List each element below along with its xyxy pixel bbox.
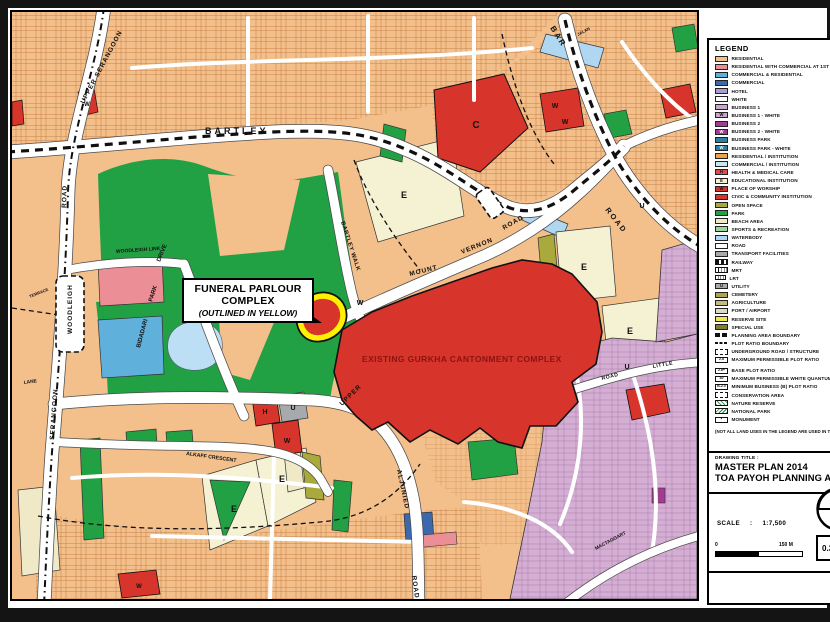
legend-item: MRT bbox=[715, 267, 830, 275]
legend-item: WBUSINESS 2 - WHITE bbox=[715, 128, 830, 136]
map-label: ROAD bbox=[61, 185, 69, 208]
legend-item: RESIDENTIAL / INSTITUTION bbox=[715, 153, 830, 161]
legend-item-label: HOTEL bbox=[732, 88, 748, 94]
scale-value: 1:7,500 bbox=[762, 520, 786, 527]
legend-swatch-c bbox=[715, 56, 728, 62]
legend-item: WBUSINESS PARK - WHITE bbox=[715, 145, 830, 153]
legend-swatch-c bbox=[715, 153, 728, 159]
legend-item-label: MAXIMUM PERMISSIBLE PLOT RATIO bbox=[732, 356, 830, 362]
worship-parcel bbox=[660, 84, 696, 118]
legend-swatch-c bbox=[715, 88, 728, 94]
legend-item-label: BUSINESS 2 - WHITE bbox=[732, 128, 781, 134]
legend-swatch-cons bbox=[715, 392, 728, 398]
legend-item: RESIDENTIAL WITH COMMERCIAL AT 1ST STORE… bbox=[715, 63, 830, 71]
legend-item-label: CEMETERY bbox=[732, 291, 759, 297]
legend-item: BUSINESS 2 bbox=[715, 120, 830, 128]
legend-item-label: BUSINESS PARK bbox=[732, 136, 771, 142]
legend-item: SPECIAL USE bbox=[715, 324, 830, 332]
park-parcel bbox=[672, 24, 697, 52]
legend-swatch-c bbox=[715, 251, 728, 257]
legend-swatch-cl: U bbox=[715, 283, 728, 289]
legend-item: WHITE bbox=[715, 96, 830, 104]
legend-item: BUSINESS PARK bbox=[715, 136, 830, 144]
legend-item: PLOT RATIO BOUNDARY bbox=[715, 340, 830, 348]
legend-swatch-cl: H bbox=[715, 169, 728, 175]
legend-item: RESERVE SITE bbox=[715, 316, 830, 324]
legend-item-label: MONUMENT bbox=[732, 416, 760, 422]
scalebar-end: 150 M bbox=[779, 542, 793, 548]
legend-item: LRT bbox=[715, 275, 830, 283]
legend-item-label: RESIDENTIAL bbox=[732, 55, 764, 61]
legend-note: (NOT ALL LAND USES IN THE LEGEND ARE USE… bbox=[715, 429, 830, 434]
legend-item-label: RESERVE SITE bbox=[732, 316, 767, 322]
legend-swatch-c bbox=[715, 80, 728, 86]
legend-item-label: COMMERCIAL / INSTITUTION bbox=[732, 161, 799, 167]
legend-item-label: WHITE bbox=[732, 96, 748, 102]
legend-item-label: CONSERVATION AREA bbox=[732, 392, 785, 398]
area-value: 0.3 Ha bbox=[822, 544, 830, 553]
map-canvas: WWWCWHUWUUEEEEEW BARTLEYUPPER SERANGOONR… bbox=[10, 10, 699, 601]
legend-item-label: TRANSPORT FACILITIES bbox=[732, 250, 789, 256]
legend-swatch-cl: E bbox=[715, 178, 728, 184]
legend-item-label: NATIONAL PARK bbox=[732, 408, 771, 414]
legend-item-label: RESIDENTIAL WITH COMMERCIAL AT 1ST STORE… bbox=[732, 63, 830, 69]
legend-item: OPEN SPACE bbox=[715, 202, 830, 210]
legend-item-label: BUSINESS 1 bbox=[732, 104, 761, 110]
legend-item: ▪MONUMENT bbox=[715, 416, 830, 424]
scale-row: SCALE:1:7,500 bbox=[717, 520, 786, 527]
legend-item: CONSERVATION AREA bbox=[715, 392, 830, 400]
legend-item-label: COMMERCIAL bbox=[732, 79, 765, 85]
legend-item-label: CIVIC & COMMUNITY INSTITUTION bbox=[732, 193, 812, 199]
legend-swatch-hg2 bbox=[715, 408, 728, 414]
legend-item: PARK bbox=[715, 210, 830, 218]
parcel-letter: W bbox=[562, 119, 569, 126]
legend-item-label: PORT / AIRPORT bbox=[732, 307, 771, 313]
scale-block: SCALE:1:7,500 0 150 M 0.3 Ha bbox=[709, 492, 830, 573]
legend-item: PLANNING AREA BOUNDARY bbox=[715, 332, 830, 340]
legend-swatch-rbox: B-2.0 bbox=[715, 384, 728, 390]
legend-item: UNDERGROUND ROAD / STRUCTURE bbox=[715, 348, 830, 356]
legend-item: ROAD bbox=[715, 242, 830, 250]
legend-swatch-c bbox=[715, 218, 728, 224]
legend-item: EEDUCATIONAL INSTITUTION bbox=[715, 177, 830, 185]
legend-item-label: WATERBODY bbox=[732, 234, 763, 240]
legend-item: COMMERCIAL & RESIDENTIAL bbox=[715, 71, 830, 79]
legend-item-label: MAXIMUM PERMISSIBLE WHITE QUANTUM bbox=[732, 375, 830, 381]
legend-swatch-cl: W bbox=[715, 129, 728, 135]
parcel-letter: W bbox=[284, 438, 291, 445]
parcel-letter: U bbox=[639, 203, 644, 210]
legend-item-label: PLACE OF WORSHIP bbox=[732, 185, 781, 191]
legend-swatch-c bbox=[715, 72, 728, 78]
legend-list: RESIDENTIALRESIDENTIAL WITH COMMERCIAL A… bbox=[715, 55, 830, 424]
parcel-letter: E bbox=[279, 474, 285, 484]
legend-item: TRANSPORT FACILITIES bbox=[715, 250, 830, 258]
callout-line1: FUNERAL PARLOUR bbox=[186, 283, 310, 295]
legend-swatch-c bbox=[715, 194, 728, 200]
legend-item: UUTILITY bbox=[715, 283, 830, 291]
legend-swatch-c bbox=[715, 210, 728, 216]
legend-item-label: UTILITY bbox=[732, 283, 750, 289]
conservation-housing-strip bbox=[656, 240, 697, 342]
legend-item: SPORTS & RECREATION bbox=[715, 226, 830, 234]
parcel-letter: U bbox=[290, 405, 295, 412]
legend-swatch-hg bbox=[715, 400, 728, 406]
legend-item: NATIONAL PARK bbox=[715, 408, 830, 416]
scale-label: SCALE bbox=[717, 520, 740, 527]
legend-item-label: PLOT RATIO BOUNDARY bbox=[732, 340, 790, 346]
callout-line3: (OUTLINED IN YELLOW) bbox=[186, 308, 310, 318]
legend-swatch-c bbox=[715, 316, 728, 322]
legend-item-label: OPEN SPACE bbox=[732, 202, 763, 208]
map-label: BARTLEY bbox=[205, 126, 269, 136]
legend-item: COMMERCIAL / INSTITUTION bbox=[715, 161, 830, 169]
scalebar bbox=[715, 551, 803, 557]
legend-item-label: UNDERGROUND ROAD / STRUCTURE bbox=[732, 348, 820, 354]
parcel-letter: C bbox=[472, 120, 479, 131]
legend-swatch-c bbox=[715, 308, 728, 314]
legend-swatch-cl: W bbox=[715, 112, 728, 118]
legend-swatch-c bbox=[715, 161, 728, 167]
parcel-letter: E bbox=[627, 326, 633, 336]
parcel-letter: W bbox=[357, 300, 364, 307]
legend-item: 2.8MAXIMUM PERMISSIBLE PLOT RATIO bbox=[715, 356, 830, 367]
parcel-letter: H bbox=[262, 409, 267, 416]
legend-swatch-c bbox=[715, 324, 728, 330]
legend-item: AGRICULTURE bbox=[715, 299, 830, 307]
legend-swatch-cl: W bbox=[715, 145, 728, 151]
drawing-title-line2: TOA PAYOH PLANNING AREA bbox=[715, 472, 830, 483]
legend-swatch-c bbox=[715, 121, 728, 127]
legend-swatch-lrt bbox=[715, 275, 726, 280]
legend-item-label: BASE PLOT RATIO bbox=[732, 367, 776, 373]
legend-swatch-c bbox=[715, 226, 728, 232]
parcel-letter: W bbox=[136, 584, 142, 590]
parcel-letter: E bbox=[231, 504, 237, 514]
legend-item: B-2.0MINIMUM BUSINESS (B) PLOT RATIO bbox=[715, 383, 830, 391]
legend-title: LEGEND bbox=[715, 44, 830, 53]
legend-item: RAILWAY bbox=[715, 259, 830, 267]
drawing-title-line1: MASTER PLAN 2014 bbox=[715, 461, 830, 472]
legend-item-label: PLANNING AREA BOUNDARY bbox=[732, 332, 801, 338]
legend-item: WPLACE OF WORSHIP bbox=[715, 185, 830, 193]
legend-item: COMMERCIAL bbox=[715, 79, 830, 87]
red-parcel bbox=[12, 100, 24, 126]
map-label: WOODLEIGH bbox=[67, 284, 74, 334]
map-label: EXISTING GURKHA CANTONMENT COMPLEX bbox=[362, 354, 562, 364]
legend-swatch-c bbox=[715, 104, 728, 110]
legend-item-label: SPORTS & RECREATION bbox=[732, 226, 789, 232]
legend-swatch-pratio bbox=[715, 342, 728, 344]
area-box: 0.3 Ha bbox=[816, 535, 830, 561]
plan-sheet: WWWCWHUWUUEEEEEW BARTLEYUPPER SERANGOONR… bbox=[8, 8, 827, 608]
legend-panel: LEGEND RESIDENTIALRESIDENTIAL WITH COMME… bbox=[707, 38, 830, 605]
legend-swatch-c bbox=[715, 243, 728, 249]
parcel-letter: E bbox=[401, 190, 407, 200]
legend-item: BUSINESS 1 bbox=[715, 104, 830, 112]
legend-item: 2.8+BASE PLOT RATIO bbox=[715, 367, 830, 375]
legend-item: CEMETERY bbox=[715, 291, 830, 299]
legend-item-label: BUSINESS 1 - WHITE bbox=[732, 112, 781, 118]
legend-item: WBUSINESS 1 - WHITE bbox=[715, 112, 830, 120]
legend-item: CIVIC & COMMUNITY INSTITUTION bbox=[715, 193, 830, 201]
legend-swatch-und bbox=[715, 349, 728, 355]
legend-item-label: LRT bbox=[730, 275, 739, 281]
legend-item: 40MAXIMUM PERMISSIBLE WHITE QUANTUM bbox=[715, 375, 830, 383]
legend-item-label: BEACH AREA bbox=[732, 218, 764, 224]
legend-item: RESIDENTIAL bbox=[715, 55, 830, 63]
legend-swatch-c bbox=[715, 64, 728, 70]
legend-swatch-c bbox=[715, 137, 728, 143]
callout-line2: COMPLEX bbox=[186, 295, 310, 307]
scalebar-fill bbox=[716, 552, 759, 556]
legend-item-label: EDUCATIONAL INSTITUTION bbox=[732, 177, 798, 183]
legend-swatch-mrt bbox=[715, 267, 728, 273]
legend-item-label: ROAD bbox=[732, 242, 746, 248]
legend-swatch-rail bbox=[715, 259, 728, 265]
legend-swatch-c bbox=[715, 300, 728, 306]
legend-item-label: COMMERCIAL & RESIDENTIAL bbox=[732, 71, 803, 77]
legend-item: NATURE RESERVE bbox=[715, 400, 830, 408]
parcel-letter: U bbox=[624, 364, 629, 371]
legend-item-label: BUSINESS PARK - WHITE bbox=[732, 145, 791, 151]
legend-item: HHEALTH & MEDICAL CARE bbox=[715, 169, 830, 177]
legend-item-label: RESIDENTIAL / INSTITUTION bbox=[732, 153, 799, 159]
legend-item-label: NATURE RESERVE bbox=[732, 400, 776, 406]
funeral-parlour-callout: FUNERAL PARLOUR COMPLEX (OUTLINED IN YEL… bbox=[182, 278, 314, 323]
legend-swatch-c bbox=[715, 96, 728, 102]
legend-item: HOTEL bbox=[715, 88, 830, 96]
legend-swatch-rbox: 40 bbox=[715, 376, 728, 382]
legend-swatch-mon: ▪ bbox=[715, 417, 728, 423]
legend-swatch-bound bbox=[715, 333, 728, 337]
legend-swatch-cl: W bbox=[715, 186, 728, 192]
legend-item-label: HEALTH & MEDICAL CARE bbox=[732, 169, 794, 175]
scalebar-start: 0 bbox=[715, 542, 718, 548]
legend-item-label: MRT bbox=[732, 267, 742, 273]
map-drawing: WWWCWHUWUUEEEEEW BARTLEYUPPER SERANGOONR… bbox=[12, 12, 697, 599]
legend-item-label: RAILWAY bbox=[732, 259, 753, 265]
legend-item: WATERBODY bbox=[715, 234, 830, 242]
legend-item-label: BUSINESS 2 bbox=[732, 120, 761, 126]
scale-sep: : bbox=[740, 520, 762, 527]
commercial-residential-parcel bbox=[98, 316, 164, 378]
legend-item-label: AGRICULTURE bbox=[732, 299, 767, 305]
legend-item-label: MINIMUM BUSINESS (B) PLOT RATIO bbox=[732, 383, 818, 389]
parcel-letter: W bbox=[552, 103, 559, 110]
legend-item-label: PARK bbox=[732, 210, 745, 216]
master-plan-page: WWWCWHUWUUEEEEEW BARTLEYUPPER SERANGOONR… bbox=[0, 0, 830, 622]
legend-item: BEACH AREA bbox=[715, 218, 830, 226]
legend-swatch-rbox: 2.8 bbox=[715, 357, 728, 363]
legend-swatch-rbox: 2.8+ bbox=[715, 368, 728, 374]
legend-swatch-c bbox=[715, 235, 728, 241]
parcel-letter: E bbox=[581, 262, 587, 272]
legend-swatch-c bbox=[715, 292, 728, 298]
legend-item-label: SPECIAL USE bbox=[732, 324, 764, 330]
legend-item: PORT / AIRPORT bbox=[715, 307, 830, 315]
legend-swatch-c bbox=[715, 202, 728, 208]
